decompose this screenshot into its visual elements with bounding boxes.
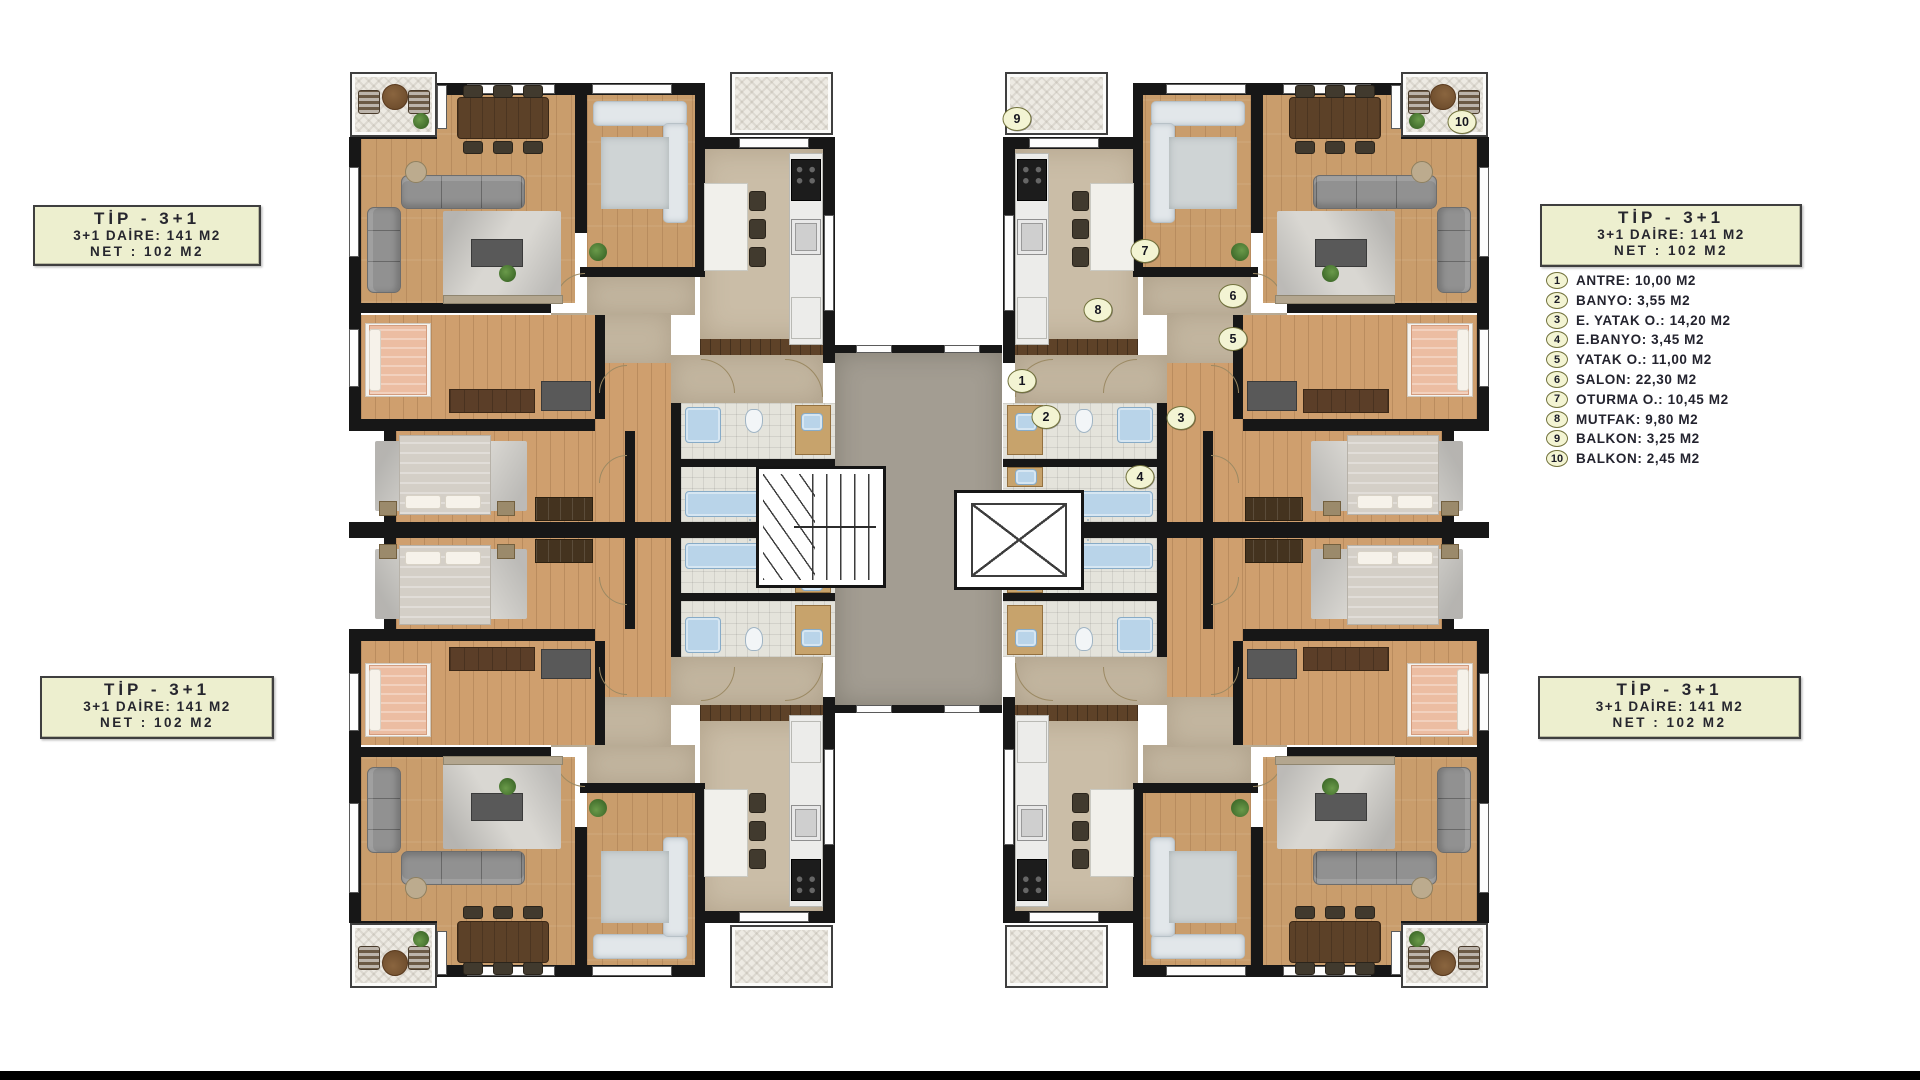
sofa-loveseat: [367, 207, 401, 293]
legend-item-number: 10: [1546, 450, 1568, 467]
kitchen-chair: [1072, 793, 1089, 813]
window: [1004, 749, 1014, 845]
room-marker-1: 1: [1008, 369, 1037, 393]
legend-item-number: 7: [1546, 391, 1568, 408]
legend-item: 10BALKON: 2,45 M2: [1546, 451, 1731, 466]
legend-item-label: SALON: 22,30 M2: [1576, 372, 1697, 387]
tv-table: [1315, 239, 1367, 267]
toilet: [1075, 409, 1093, 433]
wardrobe: [1245, 497, 1303, 521]
toilet: [1075, 627, 1093, 651]
dining-table: [1289, 97, 1381, 139]
kitchen-chair: [749, 821, 766, 841]
window: [739, 138, 809, 148]
legend-item-number: 8: [1546, 411, 1568, 428]
legend-item-label: E. YATAK O.: 14,20 M2: [1576, 313, 1731, 328]
window: [349, 673, 359, 731]
dining-chair: [493, 962, 513, 975]
side-table: [1411, 877, 1433, 899]
kitchen-cabinet: [791, 721, 821, 763]
plant: [1322, 265, 1339, 282]
stair-rail: [794, 526, 876, 528]
legend-item-label: MUTFAK: 9,80 M2: [1576, 412, 1698, 427]
tv-table: [1315, 793, 1367, 821]
legend-item-label: E.BANYO: 3,45 M2: [1576, 332, 1704, 347]
window: [824, 215, 834, 311]
balcony-table: [1430, 84, 1456, 110]
window: [437, 931, 447, 975]
pillow: [1357, 551, 1393, 565]
unit-gross-area: 3+1 DAİRE: 141 M2: [35, 228, 259, 244]
kitchen-chair: [1072, 247, 1089, 267]
window: [592, 966, 672, 976]
window: [349, 167, 359, 257]
kitchen-sink: [791, 219, 821, 255]
window: [349, 803, 359, 893]
legend-panel: 1ANTRE: 10,00 M22BANYO: 3,55 M23E. YATAK…: [1546, 273, 1731, 466]
kitchen-sink: [791, 805, 821, 841]
shower: [685, 407, 721, 443]
nightstand: [379, 544, 397, 559]
hall-upper-floor: [587, 745, 695, 783]
dresser: [449, 389, 535, 413]
balcony-chair: [1408, 90, 1430, 114]
window: [856, 705, 892, 713]
dresser: [1303, 389, 1389, 413]
wardrobe: [535, 539, 593, 563]
toilet: [1087, 519, 1089, 521]
dining-chair: [1355, 85, 1375, 98]
balcony-chair: [408, 90, 430, 114]
legend-item: 5YATAK O.: 11,00 M2: [1546, 352, 1731, 367]
pillow: [445, 551, 481, 565]
kitchen-balcony: [730, 72, 833, 135]
dining-chair: [493, 906, 513, 919]
window: [349, 329, 359, 387]
nightstand: [1441, 501, 1459, 516]
window: [856, 345, 892, 353]
kitchen-balcony: [730, 925, 833, 988]
kitchen-chair: [1072, 821, 1089, 841]
pillow: [405, 551, 441, 565]
plant: [1231, 799, 1249, 817]
kitchen-table: [1090, 789, 1134, 877]
legend-item: 3E. YATAK O.: 14,20 M2: [1546, 313, 1731, 328]
window: [1029, 912, 1099, 922]
dining-chair: [1355, 141, 1375, 154]
unit-type-title: TİP - 3+1: [42, 681, 272, 699]
legend-item-number: 6: [1546, 371, 1568, 388]
plant: [499, 778, 516, 795]
wall: [681, 593, 835, 601]
tv-table: [471, 239, 523, 267]
apartment-unit-bottom-left: [349, 530, 919, 993]
wall: [580, 267, 705, 277]
wall: [595, 315, 605, 419]
wall: [1157, 403, 1167, 522]
dining-chair: [463, 962, 483, 975]
kitchen-chair: [1072, 849, 1089, 869]
wall: [1003, 593, 1157, 601]
dining-chair: [1295, 962, 1315, 975]
tv-console: [443, 756, 563, 765]
kitchen-chair: [749, 793, 766, 813]
unit-gross-area: 3+1 DAİRE: 141 M2: [42, 699, 272, 715]
dining-chair: [1295, 85, 1315, 98]
stove: [1017, 159, 1047, 201]
bathroom-sink: [1015, 469, 1037, 485]
legend-item: 1ANTRE: 10,00 M2: [1546, 273, 1731, 288]
wall: [671, 538, 681, 657]
window: [1391, 931, 1401, 975]
tv-console: [1275, 756, 1395, 765]
oturma-rug: [1169, 137, 1237, 209]
wall: [349, 629, 595, 641]
apartment-unit-bottom-right: [919, 530, 1489, 993]
nightstand: [1323, 501, 1341, 516]
wall: [1133, 783, 1143, 977]
window: [1479, 329, 1489, 387]
dresser: [1303, 647, 1389, 671]
plant: [499, 265, 516, 282]
room-marker-2: 2: [1032, 405, 1061, 429]
nightstand: [497, 544, 515, 559]
window: [1391, 85, 1401, 129]
room-marker-8: 8: [1084, 298, 1113, 322]
wardrobe: [1245, 539, 1303, 563]
kitchen-chair: [749, 191, 766, 211]
shower: [685, 617, 721, 653]
balcony-table: [382, 950, 408, 976]
pillow: [1397, 551, 1433, 565]
tv-stand: [541, 381, 591, 411]
toilet: [749, 539, 751, 541]
tv-stand: [1247, 649, 1297, 679]
wall: [1251, 827, 1263, 977]
dining-chair: [1355, 906, 1375, 919]
kitchen-sink: [1017, 805, 1047, 841]
kitchen-table: [1090, 183, 1134, 271]
nightstand: [379, 501, 397, 516]
room-marker-3: 3: [1167, 406, 1196, 430]
plant: [589, 799, 607, 817]
dining-chair: [463, 906, 483, 919]
unit-type-label-top-right: TİP - 3+1 3+1 DAİRE: 141 M2 NET : 102 M2: [1540, 204, 1802, 267]
unit-type-label-top-left: TİP - 3+1 3+1 DAİRE: 141 M2 NET : 102 M2: [33, 205, 261, 266]
dining-chair: [1325, 906, 1345, 919]
kitchen-chair: [749, 849, 766, 869]
pillow: [1457, 669, 1469, 731]
room-marker-9: 9: [1003, 107, 1032, 131]
legend-item-label: OTURMA O.: 10,45 M2: [1576, 392, 1729, 407]
plant: [1409, 931, 1425, 947]
dining-chair: [1295, 141, 1315, 154]
footer-bar: [0, 1071, 1920, 1080]
wall: [580, 783, 705, 793]
unit-type-label-bottom-right: TİP - 3+1 3+1 DAİRE: 141 M2 NET : 102 M2: [1538, 676, 1801, 739]
legend-item-label: BANYO: 3,55 M2: [1576, 293, 1690, 308]
window: [1479, 167, 1489, 257]
wall: [671, 403, 681, 522]
dining-chair: [523, 85, 543, 98]
apartment-unit-top-left: [349, 67, 919, 530]
nightstand: [497, 501, 515, 516]
unit-net-area: NET : 102 M2: [42, 715, 272, 731]
window: [1004, 215, 1014, 311]
bathroom-sink: [801, 413, 823, 431]
l-sofa-long: [593, 934, 687, 959]
plant: [1231, 243, 1249, 261]
stove: [791, 159, 821, 201]
dining-table: [457, 97, 549, 139]
tv-stand: [1247, 381, 1297, 411]
window: [944, 345, 980, 353]
dining-chair: [523, 141, 543, 154]
wall: [1157, 538, 1167, 657]
room-marker-10: 10: [1448, 110, 1477, 134]
dining-table: [457, 921, 549, 963]
kitchen-balcony: [1005, 925, 1108, 988]
pillow: [1457, 329, 1469, 391]
unit-type-label-bottom-left: TİP - 3+1 3+1 DAİRE: 141 M2 NET : 102 M2: [40, 676, 274, 739]
tv-stand: [541, 649, 591, 679]
pillow: [445, 495, 481, 509]
hall-upper-floor: [1143, 745, 1251, 783]
kitchen-chair: [749, 219, 766, 239]
unit-type-title: TİP - 3+1: [1542, 209, 1800, 227]
dining-chair: [1355, 962, 1375, 975]
kitchen-cabinet: [1017, 297, 1047, 339]
window: [739, 912, 809, 922]
plant: [589, 243, 607, 261]
legend-item-label: YATAK O.: 11,00 M2: [1576, 352, 1712, 367]
tv-console: [1275, 295, 1395, 304]
pillow: [369, 329, 381, 391]
kitchen-cabinet: [791, 297, 821, 339]
side-table: [1411, 161, 1433, 183]
kitchen-cabinet: [1017, 721, 1047, 763]
toilet: [745, 409, 763, 433]
stove: [791, 859, 821, 901]
balcony-chair: [358, 90, 380, 114]
unit-net-area: NET : 102 M2: [1542, 243, 1800, 259]
legend-item: 2BANYO: 3,55 M2: [1546, 293, 1731, 308]
balcony-table: [1430, 950, 1456, 976]
oturma-rug: [601, 137, 669, 209]
floorplan-canvas: TİP - 3+1 3+1 DAİRE: 141 M2 NET : 102 M2…: [0, 0, 1920, 1080]
window: [592, 84, 672, 94]
wardrobe: [535, 497, 593, 521]
kitchen-chair: [1072, 191, 1089, 211]
dining-chair: [523, 906, 543, 919]
wall: [1243, 629, 1489, 641]
kitchen-chair: [1072, 219, 1089, 239]
dresser: [449, 647, 535, 671]
wall: [355, 303, 551, 313]
bathroom-sink: [1015, 629, 1037, 647]
wall: [1133, 267, 1258, 277]
kitchen-table: [704, 789, 748, 877]
plant: [1322, 778, 1339, 795]
wall: [1251, 83, 1263, 233]
tv-table: [471, 793, 523, 821]
kitchen-table: [704, 183, 748, 271]
sofa-loveseat: [1437, 767, 1471, 853]
wall: [1133, 783, 1258, 793]
unit-net-area: NET : 102 M2: [35, 244, 259, 260]
plant: [413, 113, 429, 129]
pillow: [405, 495, 441, 509]
window: [437, 85, 447, 129]
side-table: [405, 161, 427, 183]
nightstand: [1323, 544, 1341, 559]
legend-item-label: ANTRE: 10,00 M2: [1576, 273, 1696, 288]
unit-gross-area: 3+1 DAİRE: 141 M2: [1540, 699, 1799, 715]
dining-chair: [1325, 85, 1345, 98]
toilet: [745, 627, 763, 651]
dining-chair: [1325, 962, 1345, 975]
legend-item-label: BALKON: 2,45 M2: [1576, 451, 1700, 466]
unit-type-title: TİP - 3+1: [35, 210, 259, 228]
sofa-loveseat: [1437, 207, 1471, 293]
wall: [349, 419, 595, 431]
legend-item-number: 9: [1546, 430, 1568, 447]
dining-chair: [523, 962, 543, 975]
pillow: [1397, 495, 1433, 509]
legend-item: 4E.BANYO: 3,45 M2: [1546, 332, 1731, 347]
dining-chair: [463, 85, 483, 98]
side-table: [405, 877, 427, 899]
legend-item-number: 3: [1546, 312, 1568, 329]
window: [944, 705, 980, 713]
room-marker-7: 7: [1131, 239, 1160, 263]
window: [1029, 138, 1099, 148]
legend-item-number: 1: [1546, 272, 1568, 289]
staircase: [756, 466, 886, 588]
oturma-rug: [1169, 851, 1237, 923]
elevator-cabin-icon: [971, 503, 1067, 577]
window: [1479, 673, 1489, 731]
unit-type-title: TİP - 3+1: [1540, 681, 1799, 699]
wall: [1287, 303, 1483, 313]
window: [824, 749, 834, 845]
shower: [1117, 407, 1153, 443]
kitchen-sink: [1017, 219, 1047, 255]
nightstand: [1441, 544, 1459, 559]
legend-item: 8MUTFAK: 9,80 M2: [1546, 411, 1731, 426]
window: [1166, 84, 1246, 94]
legend-item-number: 2: [1546, 292, 1568, 309]
pillow: [1357, 495, 1393, 509]
dining-table: [1289, 921, 1381, 963]
legend-item-number: 5: [1546, 351, 1568, 368]
wall: [1243, 419, 1489, 431]
room-marker-5: 5: [1219, 327, 1248, 351]
l-sofa-long: [1151, 934, 1245, 959]
dining-chair: [493, 141, 513, 154]
toilet: [749, 519, 751, 521]
balcony-chair: [1458, 946, 1480, 970]
bathroom-sink: [801, 629, 823, 647]
wall: [595, 641, 605, 745]
tv-console: [443, 295, 563, 304]
legend-item-label: BALKON: 3,25 M2: [1576, 431, 1700, 446]
room-marker-6: 6: [1219, 284, 1248, 308]
window: [1479, 803, 1489, 893]
hall-upper-floor: [587, 277, 695, 315]
balcony-chair: [358, 946, 380, 970]
legend-item: 7OTURMA O.: 10,45 M2: [1546, 392, 1731, 407]
pillow: [369, 669, 381, 731]
oturma-rug: [601, 851, 669, 923]
balcony-chair: [408, 946, 430, 970]
toilet: [1087, 539, 1089, 541]
balcony-chair: [1408, 946, 1430, 970]
wall: [575, 83, 587, 233]
legend-item: 9BALKON: 3,25 M2: [1546, 431, 1731, 446]
elevator-shaft: [954, 490, 1084, 590]
unit-gross-area: 3+1 DAİRE: 141 M2: [1542, 227, 1800, 243]
plant: [413, 931, 429, 947]
dining-chair: [1325, 141, 1345, 154]
sofa-loveseat: [367, 767, 401, 853]
shower: [1117, 617, 1153, 653]
unit-net-area: NET : 102 M2: [1540, 715, 1799, 731]
dining-chair: [1295, 906, 1315, 919]
wall: [575, 827, 587, 977]
kitchen-chair: [749, 247, 766, 267]
legend-item-number: 4: [1546, 331, 1568, 348]
balcony-table: [382, 84, 408, 110]
stove: [1017, 859, 1047, 901]
dining-chair: [463, 141, 483, 154]
window: [1166, 966, 1246, 976]
wall: [1233, 641, 1243, 745]
plant: [1409, 113, 1425, 129]
room-marker-4: 4: [1126, 465, 1155, 489]
legend-item: 6SALON: 22,30 M2: [1546, 372, 1731, 387]
dining-chair: [493, 85, 513, 98]
apartment-unit-top-right: [919, 67, 1489, 530]
